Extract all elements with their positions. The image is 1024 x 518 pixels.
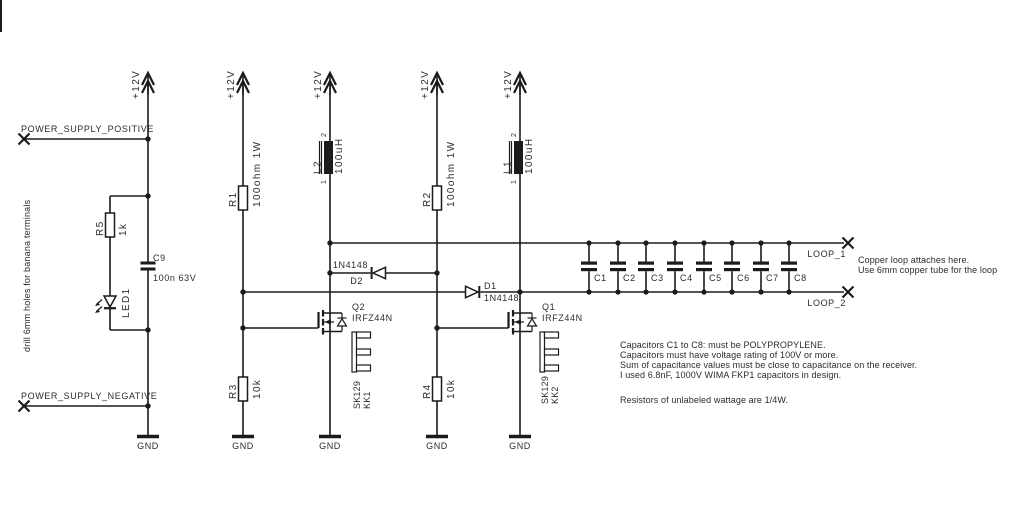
capacitor-note-line: Capacitors C1 to C8: must be POLYPROPYLE… — [620, 340, 826, 350]
heatsink1-value: KK1 — [362, 391, 372, 409]
q1-ref: Q1 — [542, 302, 555, 312]
led-led1 — [95, 296, 116, 313]
r5-ref: R5 — [95, 220, 106, 236]
junction-dot — [240, 289, 245, 294]
power-rail-label: +12V — [131, 70, 142, 99]
gnd-label: GND — [426, 441, 448, 451]
inductor-body — [510, 141, 524, 174]
loop-capacitor: C6 — [724, 240, 750, 294]
resistor-note: Resistors of unlabeled wattage are 1/4W. — [620, 395, 788, 405]
loop-capacitor: C5 — [696, 240, 722, 294]
gnd-symbol: GND — [232, 437, 254, 452]
psu-negative-label: POWER_SUPPLY_NEGATIVE — [21, 391, 157, 401]
r4-value: 10k — [446, 379, 457, 399]
heatsink1-ref: SK129 — [352, 381, 362, 409]
r3-value: 10k — [252, 379, 263, 399]
r4-ref: R4 — [422, 383, 433, 399]
l1-pin2: 2 — [511, 133, 518, 137]
l2-pin2: 2 — [321, 133, 328, 137]
gnd-symbol: GND — [426, 437, 448, 452]
r3-ref: R3 — [228, 383, 239, 399]
junction-dot — [240, 325, 245, 330]
loop-capacitor: C1 — [581, 240, 607, 294]
junction-dot — [327, 240, 332, 245]
drill-note: drill 6mm holes for banana terminals — [22, 199, 32, 352]
mosfet-q1 — [509, 310, 537, 335]
heatsink-kk2 — [540, 332, 559, 372]
capacitor-note-line: I used 6.8nF, 1000V WIMA FKP1 capacitors… — [620, 370, 841, 380]
loop-capacitor: C4 — [667, 240, 693, 294]
loop1-label: LOOP_1 — [807, 249, 846, 259]
c9-value: 100n 63V — [153, 273, 196, 283]
resistor-body — [239, 377, 248, 401]
resistor-body — [433, 186, 442, 210]
loop-capacitor: C3 — [638, 240, 664, 294]
resistor-body — [239, 186, 248, 210]
r1-value: 100ohm 1W — [252, 140, 263, 207]
l2-pin1: 1 — [321, 180, 328, 184]
page-edge-artifact — [0, 0, 2, 32]
schematic-page: POWER_SUPPLY_POSITIVE POWER_SUPPLY_NEGAT… — [0, 0, 1024, 518]
mosfet-q2 — [319, 310, 347, 335]
junction-dot — [145, 193, 150, 198]
power-rail-label: +12V — [420, 70, 431, 99]
d2-ref: D2 — [350, 276, 363, 286]
inductor-body — [320, 141, 334, 174]
schematic-canvas: POWER_SUPPLY_POSITIVE POWER_SUPPLY_NEGAT… — [0, 0, 1024, 518]
junction-dot — [434, 325, 439, 330]
junction-dot — [145, 403, 150, 408]
gnd-label: GND — [137, 441, 159, 451]
loop-capacitor: C7 — [753, 240, 779, 294]
junction-dot — [145, 136, 150, 141]
d1-ref: D1 — [484, 281, 497, 291]
junction-dot — [145, 327, 150, 332]
heatsink2-value: KK2 — [550, 386, 560, 404]
r2-value: 100ohm 1W — [446, 140, 457, 207]
junction-dot — [434, 270, 439, 275]
d1-value: 1N4148 — [484, 293, 519, 303]
power-rail-label: +12V — [503, 70, 514, 99]
loop-capacitor-label: C8 — [794, 273, 807, 283]
power-flag-12v: +12V — [503, 70, 526, 99]
loop-capacitor-label: C2 — [623, 273, 636, 283]
l2-value: 100uH — [334, 138, 345, 174]
gnd-label: GND — [509, 441, 531, 451]
power-rail-label: +12V — [313, 70, 324, 99]
gnd-symbol: GND — [509, 437, 531, 452]
q1-value: IRFZ44N — [542, 313, 583, 323]
diode-d2 — [371, 267, 386, 279]
c9-ref: C9 — [153, 253, 166, 263]
resistor-body — [106, 213, 115, 237]
terminal-loop1 — [843, 238, 854, 249]
heatsink2-ref: SK129 — [540, 376, 550, 404]
gnd-label: GND — [319, 441, 341, 451]
loop-capacitor-label: C4 — [680, 273, 693, 283]
copper-loop-note-2: Use 6mm copper tube for the loop — [858, 265, 997, 275]
junction-dot — [327, 270, 332, 275]
q2-value: IRFZ44N — [352, 313, 393, 323]
q2-ref: Q2 — [352, 302, 365, 312]
capacitor-note-line: Sum of capacitance values must be close … — [620, 360, 917, 370]
heatsink-kk1 — [352, 332, 371, 372]
led1-ref: LED1 — [121, 287, 132, 318]
gnd-symbol: GND — [137, 437, 159, 452]
loop-capacitor-label: C7 — [766, 273, 779, 283]
r5-value: 1k — [118, 223, 129, 236]
copper-loop-note-1: Copper loop attaches here. — [858, 255, 969, 265]
r2-ref: R2 — [422, 191, 433, 207]
loop2-label: LOOP_2 — [807, 298, 846, 308]
loop-capacitor-label: C5 — [709, 273, 722, 283]
d2-value: 1N4148 — [333, 260, 368, 270]
loop-capacitor-label: C3 — [651, 273, 664, 283]
loop-capacitor-label: C6 — [737, 273, 750, 283]
psu-positive-label: POWER_SUPPLY_POSITIVE — [21, 124, 154, 134]
loop-capacitor: C8 — [781, 240, 807, 294]
loop-capacitor: C2 — [610, 240, 636, 294]
loop-capacitor-label: C1 — [594, 273, 607, 283]
capacitor-note-line: Capacitors must have voltage rating of 1… — [620, 350, 838, 360]
power-flag-12v: +12V — [131, 70, 154, 99]
r1-ref: R1 — [228, 191, 239, 207]
capacitor-notes: Capacitors C1 to C8: must be POLYPROPYLE… — [620, 340, 917, 380]
diode-d1 — [466, 286, 481, 298]
power-flag-12v: +12V — [226, 70, 249, 99]
gnd-symbol: GND — [319, 437, 341, 452]
power-rail-label: +12V — [226, 70, 237, 99]
junction-dot — [517, 289, 522, 294]
power-flag-12v: +12V — [420, 70, 443, 99]
terminal-loop2 — [843, 287, 854, 298]
l1-pin1: 1 — [511, 180, 518, 184]
power-flag-12v: +12V — [313, 70, 336, 99]
resistor-body — [433, 377, 442, 401]
l1-value: 100uH — [524, 138, 535, 174]
gnd-label: GND — [232, 441, 254, 451]
